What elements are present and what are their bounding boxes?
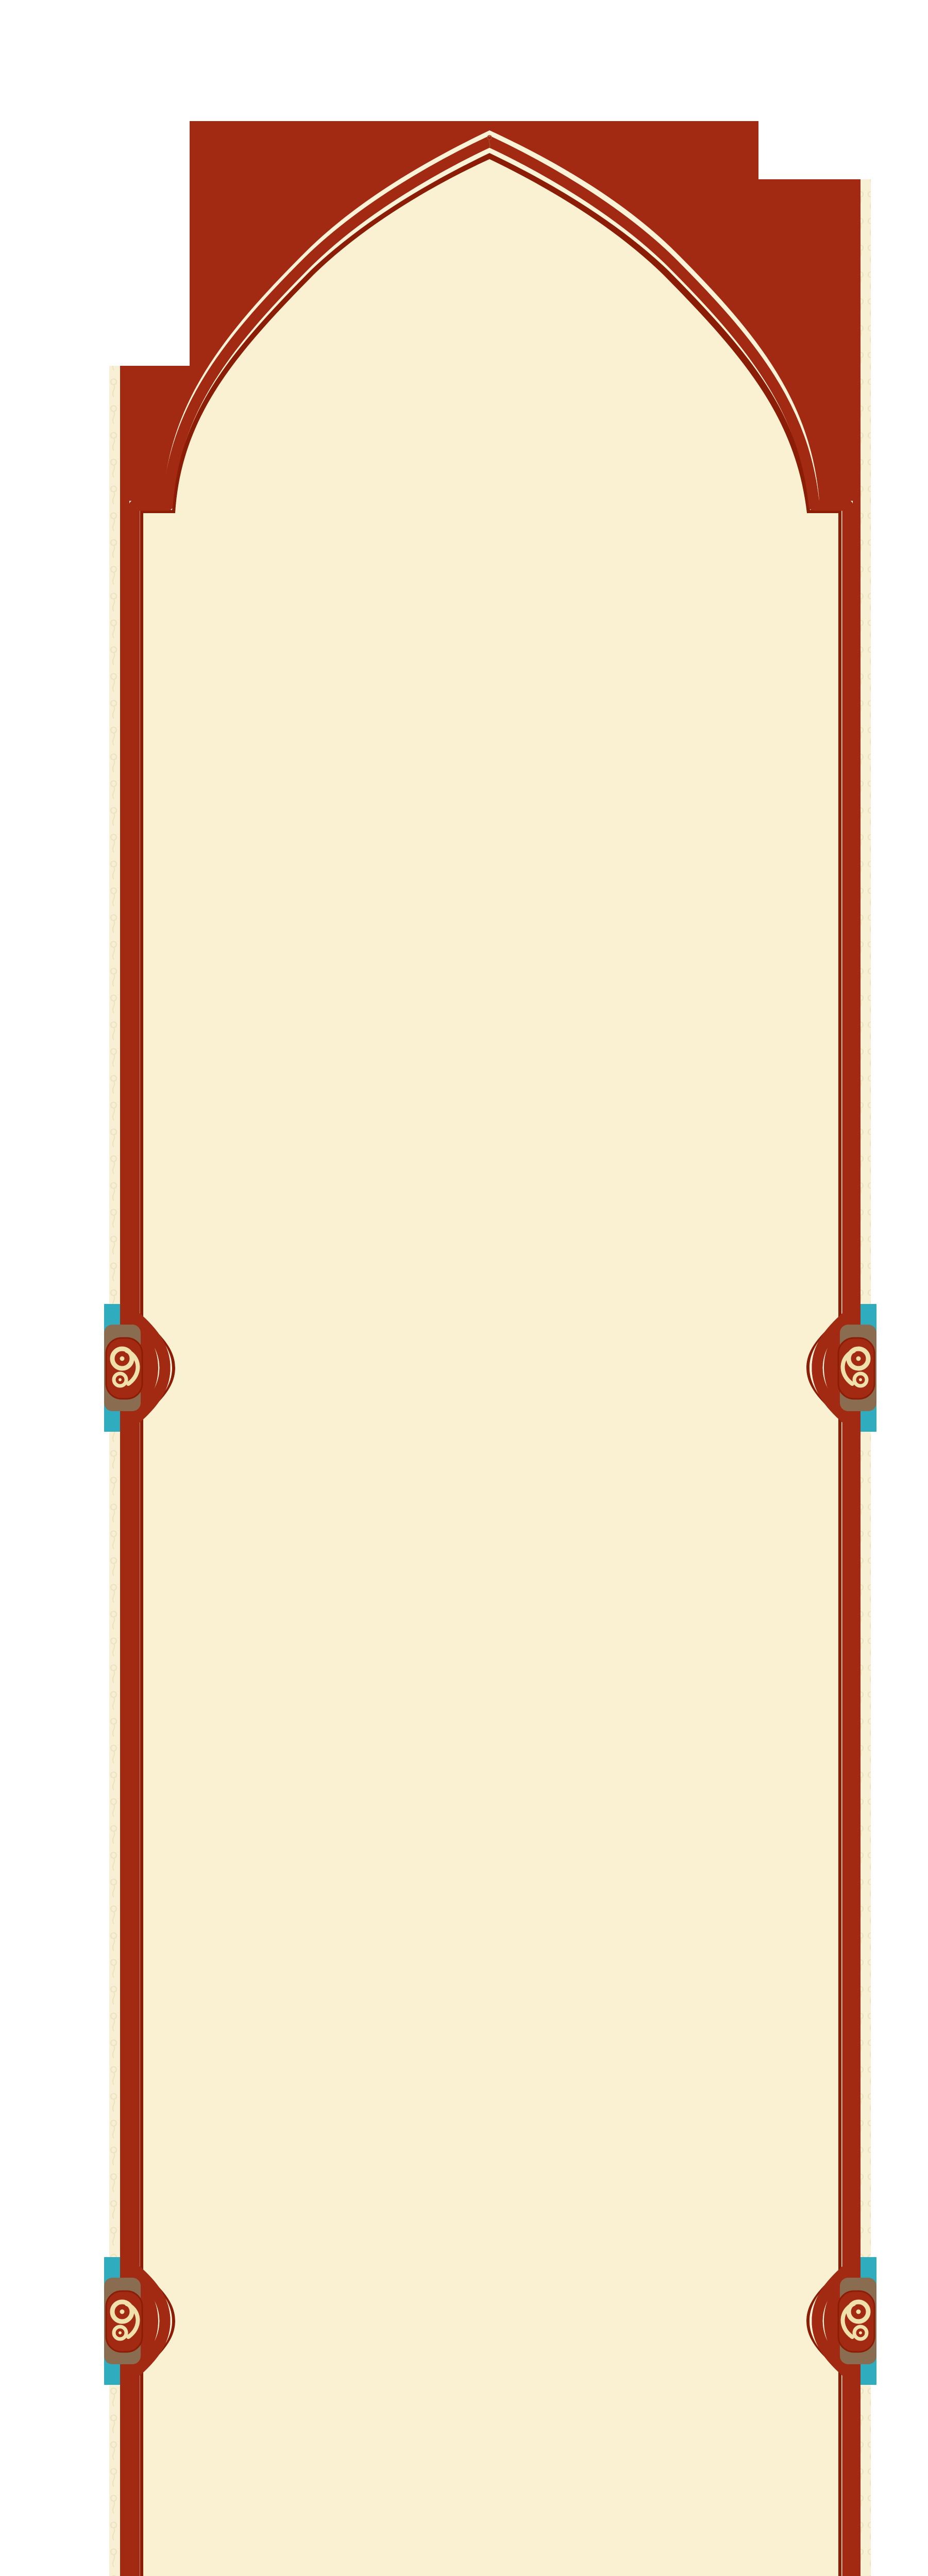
ornamental-arch-panel xyxy=(0,0,928,2576)
medallion-right-4505 xyxy=(838,2278,876,2364)
medallion-right-2655 xyxy=(838,1325,876,1411)
outer-cream-strip xyxy=(109,366,120,2576)
medallion-left-2655 xyxy=(104,1325,142,1411)
damask-wallpaper xyxy=(143,159,838,2576)
page-background: { "canvas": { "width": 1801, "height": 5… xyxy=(0,0,928,2576)
medallion-left-4505 xyxy=(104,2278,142,2364)
